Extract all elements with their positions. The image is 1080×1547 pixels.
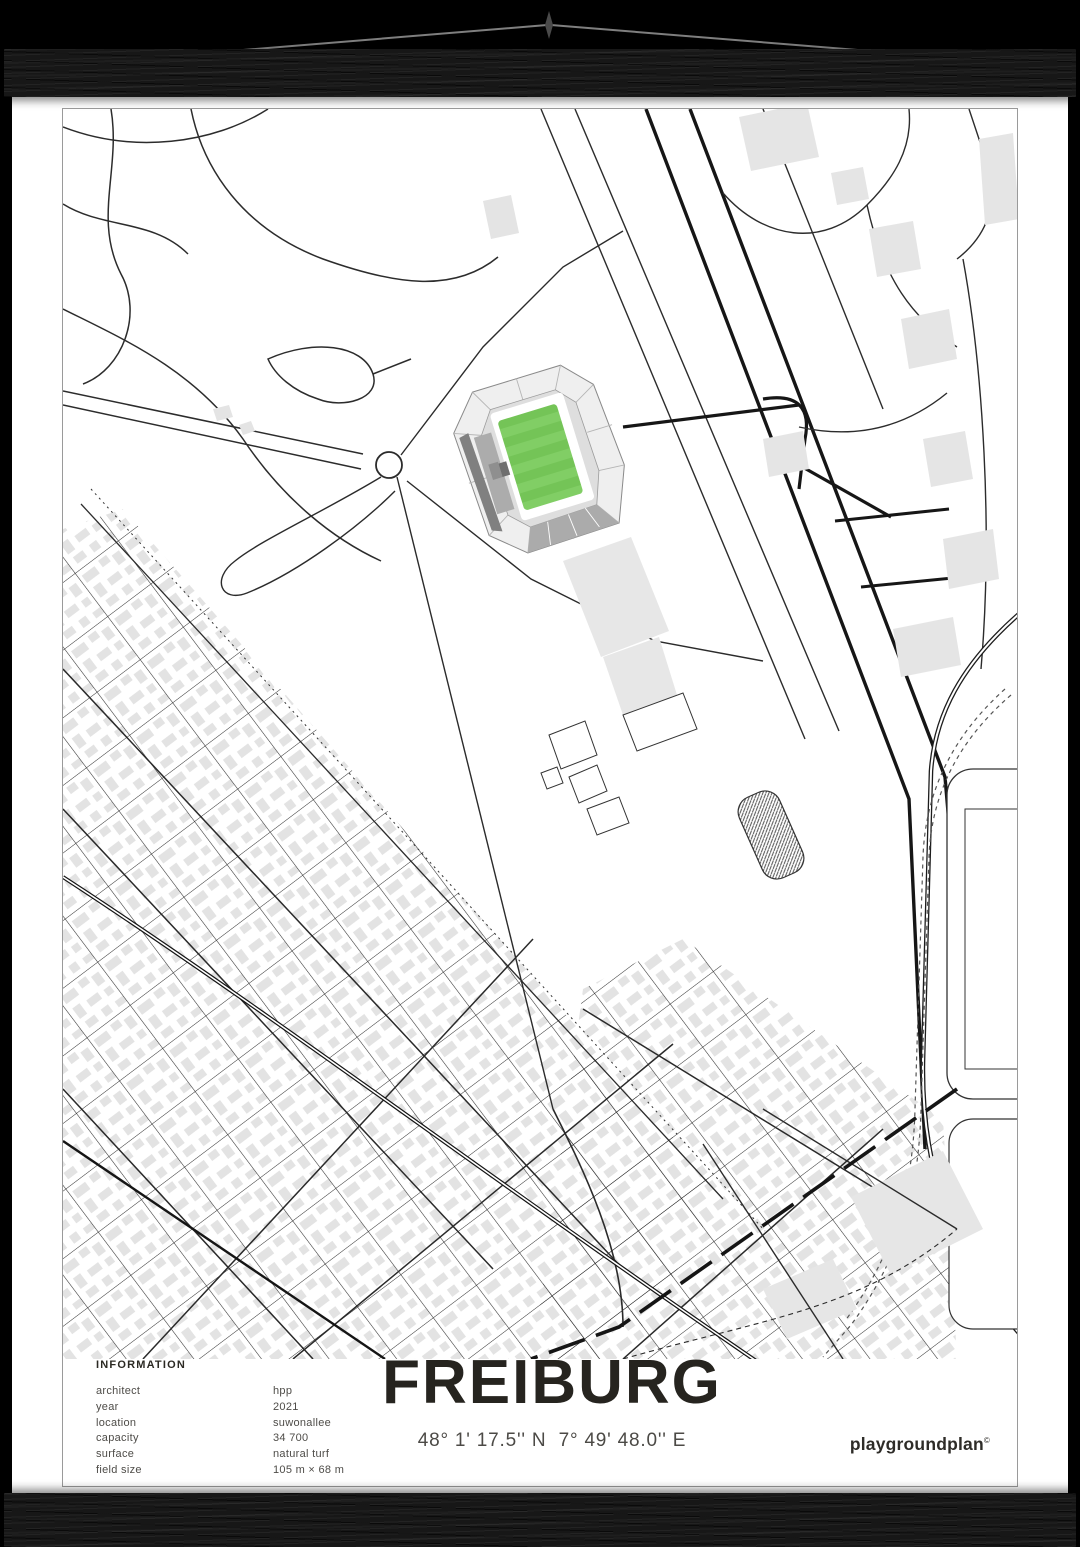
info-row-location: location suwonallee [96, 1416, 344, 1432]
info-row-capacity: capacity 34 700 [96, 1431, 344, 1447]
brand-mark: © [984, 1436, 990, 1445]
top-hanger-bar [4, 49, 1076, 97]
title-block: FREIBURG 48° 1' 17.5'' N 7° 49' 48.0'' E [382, 1352, 722, 1452]
information-heading: INFORMATION [96, 1359, 344, 1371]
brand-logo: playgroundplan© [850, 1434, 990, 1455]
poster-product-photo: INFORMATION architect hpp year 2021 loca… [0, 0, 1080, 1547]
city-map [63, 109, 1017, 1486]
information-block: INFORMATION architect hpp year 2021 loca… [96, 1359, 344, 1479]
map-roundabout [376, 452, 402, 478]
poster-coordinates: 48° 1' 17.5'' N 7° 49' 48.0'' E [382, 1430, 722, 1452]
cord-bead [545, 11, 553, 39]
info-row-year: year 2021 [96, 1400, 344, 1416]
info-row-field-size: field size 105 m × 68 m [96, 1463, 344, 1479]
poster-title: FREIBURG [382, 1352, 722, 1414]
info-row-surface: surface natural turf [96, 1447, 344, 1463]
map-frame: INFORMATION architect hpp year 2021 loca… [62, 108, 1018, 1487]
stadium [444, 356, 641, 564]
bottom-hanger-bar [4, 1493, 1076, 1547]
map-hatched-building [733, 786, 809, 884]
map-forest-paths [63, 109, 498, 561]
info-row-architect: architect hpp [96, 1384, 344, 1400]
